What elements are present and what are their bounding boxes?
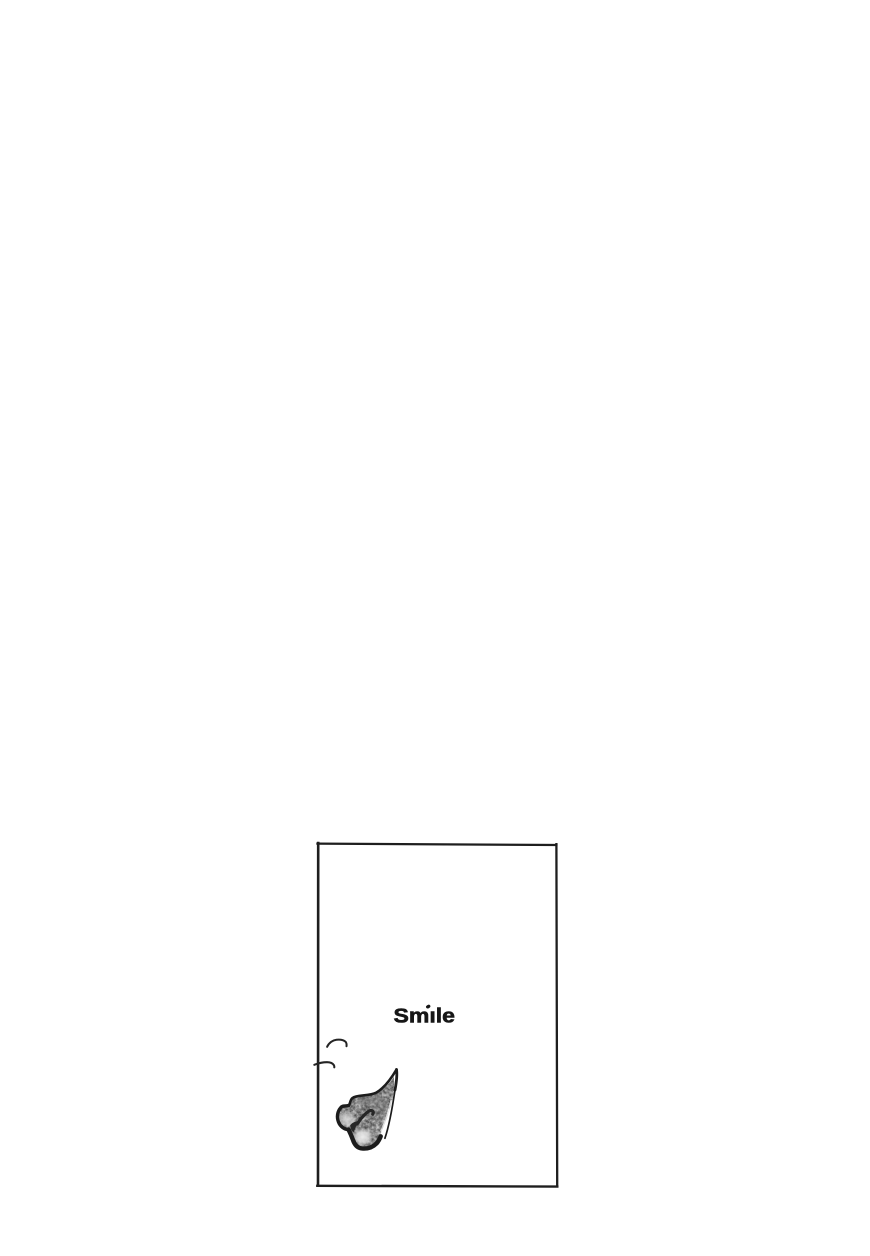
svg-text:Smıle: Smıle: [394, 1006, 456, 1028]
